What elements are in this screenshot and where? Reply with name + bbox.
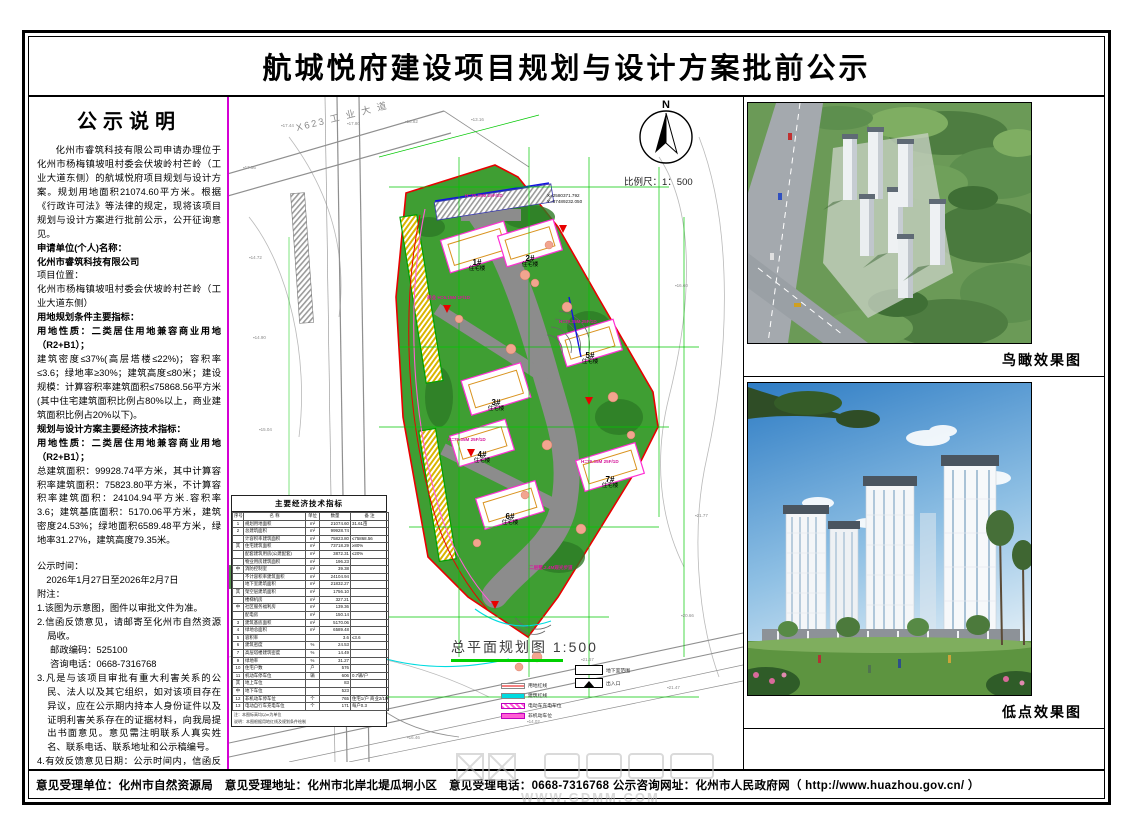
table-cell: 13	[233, 703, 244, 711]
table-cell: 73718.29	[320, 543, 351, 551]
table-row: 12非机动车停车位个765住宅1/户 商业2/100m²	[233, 695, 389, 703]
th-note: 备 注	[351, 513, 389, 521]
building-spec-label: H=79.35M 25F/2D	[465, 193, 503, 199]
notice-paragraph: 附注：	[37, 588, 221, 602]
table-cell: 39.38	[320, 566, 351, 574]
table-cell	[233, 535, 244, 543]
table-cell	[351, 573, 389, 581]
table-cell: 非机动车停车位	[244, 695, 306, 703]
page-title: 航城悦府建设项目规划与设计方案批前公示	[262, 45, 870, 87]
table-cell: 11	[233, 672, 244, 680]
building-label-5: 5#住宅楼	[582, 352, 599, 366]
table-row: 4绿地总面积m²6589.48	[233, 627, 389, 635]
notice-paragraph: 邮政编码：525100	[50, 644, 221, 658]
table-cell	[351, 642, 389, 650]
table-cell: 建筑基底面积	[244, 619, 306, 627]
table-row: 2总建筑面积m²99928.74	[233, 528, 389, 536]
table-row: 配电房m²150.14	[233, 611, 389, 619]
footer-bar: 意见受理单位：化州市自然资源局 意见受理地址：化州市北岸北堤瓜坰小区 意见受理电…	[29, 769, 1104, 798]
table-cell	[351, 528, 389, 536]
table-cell	[233, 551, 244, 559]
table-cell: 楼梯机房	[244, 596, 306, 604]
table-cell	[233, 611, 244, 619]
table-cell: m²	[306, 520, 320, 528]
building-label-4: 4#住宅楼	[474, 451, 491, 465]
th-name: 名 称	[244, 513, 306, 521]
table-cell: 139.36	[320, 604, 351, 612]
aerial-caption-row: 鸟瞰效果图	[744, 344, 1104, 377]
table-cell: 765	[320, 695, 351, 703]
table-cell: 其	[233, 589, 244, 597]
table-cell: m²	[306, 604, 320, 612]
street-figure	[744, 377, 1104, 696]
branch-foliage	[774, 391, 842, 415]
notice-paragraph: 建筑密度≤37%(高层塔楼≤22%)；容积率≤3.6；绿地率≥30%；建筑高度≤…	[37, 353, 221, 423]
table-cell	[233, 573, 244, 581]
basement-extent-swatch	[575, 665, 603, 675]
table-cell: ≤20%	[351, 551, 389, 559]
site-plan: N 比例尺：1：500 X623 工 业 大 道 X=2580371.792 Y…	[229, 97, 743, 769]
building-label-7: 7#住宅楼	[602, 476, 619, 490]
legend-item: 非机动车位	[501, 712, 562, 719]
table-cell	[233, 581, 244, 589]
notice-panel: 公示说明 化州市睿筑科技有限公司申请办理位于化州市杨梅镇坡咀村委会伏坡岭村芒岭（…	[29, 97, 227, 769]
table-cell: 绿地总面积	[244, 627, 306, 635]
notice-paragraph: 用地性质：二类居住用地兼容商业用地（R2+B1）；	[37, 325, 221, 353]
table-cell: 物业用房建筑面积	[244, 558, 306, 566]
table-note: 注：本图标高均以m为单位	[232, 711, 386, 719]
table-cell: 523	[320, 688, 351, 696]
table-cell: 社区服务福利房	[244, 604, 306, 612]
table-note: 说明：本图根据用地红线及规划条件绘制	[232, 718, 386, 726]
table-cell: 6	[233, 642, 244, 650]
street-caption-row: 低点效果图	[744, 696, 1104, 729]
table-row: 其地上车位83	[233, 680, 389, 688]
table-cell: 3.6	[320, 634, 351, 642]
table-row: 其架空层建筑面积m²1756.10	[233, 589, 389, 597]
legend-item: 用地红线	[501, 682, 562, 689]
elevation-mark: ▪20.66	[681, 613, 694, 618]
table-cell: 计容积率建筑面积	[244, 535, 306, 543]
table-cell: 不计容积率建筑面积	[244, 573, 306, 581]
table-cell	[351, 581, 389, 589]
building-spec-label: 二层墅.2.4M观光步道	[529, 565, 573, 571]
plan-legend-colors: 用地红线 建筑红线 电动车充电车位 非机动车位	[501, 682, 562, 722]
table-row: 中消防控制室m²39.38	[233, 566, 389, 574]
street-render-image	[747, 382, 1032, 696]
elevation-mark: ▪14.90	[253, 335, 266, 340]
legend-item: 建筑红线	[501, 692, 562, 699]
elevation-mark: ▪14.72	[249, 255, 262, 260]
table-cell: 150.14	[320, 611, 351, 619]
table-cell: m²	[306, 566, 320, 574]
table-cell: 中	[233, 604, 244, 612]
table-cell: 总建筑面积	[244, 528, 306, 536]
table-cell: 辆	[306, 672, 320, 680]
table-cell: 电动自行车充电车位	[244, 703, 306, 711]
building-spec-label: H=79.35M 25F/1D	[448, 437, 486, 443]
table-cell: 0.7辆/户	[351, 672, 389, 680]
table-cell: %	[306, 649, 320, 657]
table-row: 中社区服务福利房m²139.36	[233, 604, 389, 612]
table-cell	[351, 649, 389, 657]
notice-paragraph: 3.凡是与该项目审批有重大利害关系的公民、法人以及其它组织，如对该项目存在异议，…	[37, 672, 221, 756]
building-spec-label: H=79.35M 25F/1D	[581, 459, 619, 465]
lawn-highlight	[748, 637, 1031, 653]
table-row: 配套建筑用房(公建配套)m²3872.31≤20%	[233, 551, 389, 559]
table-cell	[351, 619, 389, 627]
table-row: 中地下车位523	[233, 688, 389, 696]
table-cell: 99928.74	[320, 528, 351, 536]
red-line-swatch	[501, 683, 525, 689]
notice-paragraph: 化州市睿筑科技有限公司	[37, 256, 221, 270]
table-cell: 21074.60	[320, 520, 351, 528]
cyan-line-swatch	[501, 693, 525, 699]
table-cell: 606	[320, 672, 351, 680]
table-cell	[233, 596, 244, 604]
building-label-2: 2#住宅楼	[522, 255, 539, 269]
table-row: 其住宅建筑面积m²73718.29≥80%	[233, 543, 389, 551]
notice-paragraph: 2.信函反馈意见，请邮寄至化州市自然资源局收。	[37, 616, 221, 644]
table-cell: 12	[233, 695, 244, 703]
table-cell: 2	[233, 528, 244, 536]
table-cell: ≥80%	[351, 543, 389, 551]
table-cell	[351, 665, 389, 673]
table-cell: 9	[233, 657, 244, 665]
aerial-figure	[744, 97, 1104, 344]
elevation-mark: ▪17.80	[347, 121, 360, 126]
legend-item: 出入口	[575, 678, 630, 688]
table-cell: 7	[233, 649, 244, 657]
notice-paragraph: 公示时间：	[37, 560, 221, 574]
table-cell: m²	[306, 528, 320, 536]
table-cell	[351, 566, 389, 574]
building-label-3: 3#住宅楼	[488, 399, 505, 413]
table-cell: 配电房	[244, 611, 306, 619]
elevation-mark: ▪21.77	[695, 513, 708, 518]
table-cell: 14.49	[320, 649, 351, 657]
th-unit: 单位	[306, 513, 320, 521]
table-cell: 配套建筑用房(公建配套)	[244, 551, 306, 559]
table-cell	[351, 589, 389, 597]
plan-overlays: 1#住宅楼 2#住宅楼 3#住宅楼 4#住宅楼 5#住宅楼 6#住宅楼 7#住宅…	[229, 97, 743, 762]
caption-underline	[451, 659, 563, 662]
notice-paragraph: 化州市睿筑科技有限公司申请办理位于化州市杨梅镇坡咀村委会伏坡岭村芒岭（工业大道东…	[37, 144, 221, 242]
table-cell	[306, 688, 320, 696]
building-label-6: 6#住宅楼	[502, 513, 519, 527]
table-cell: 个	[306, 695, 320, 703]
table-cell: 576	[320, 665, 351, 673]
table-cell: 10	[233, 665, 244, 673]
table-cell	[351, 688, 389, 696]
table-cell: 3	[233, 619, 244, 627]
table-cell: m²	[306, 535, 320, 543]
table-cell: 机动车停车位	[244, 672, 306, 680]
content-area: 公示说明 化州市睿筑科技有限公司申请办理位于化州市杨梅镇坡咀村委会伏坡岭村芒岭（…	[29, 97, 1104, 769]
table-cell: 绿地率	[244, 657, 306, 665]
table-header: 序号 名 称 单位 数量 备 注	[233, 513, 389, 521]
table-cell: 171	[320, 703, 351, 711]
table-row: 1规划用地面积m²21074.6031.61亩	[233, 520, 389, 528]
table-cell	[351, 627, 389, 635]
notice-paragraph: 项目位置：	[37, 269, 221, 283]
table-row: 10住宅户数户576	[233, 665, 389, 673]
table-cell: ≤3.6	[351, 634, 389, 642]
table-title: 主要经济技术指标	[232, 496, 386, 512]
table-cell: 建筑密度	[244, 642, 306, 650]
table-cell: m²	[306, 596, 320, 604]
table-cell: 其	[233, 680, 244, 688]
notice-paragraph: 4.有效反馈意见日期：公示时间内，信函反馈意见邮戳日不应超过公示时间最后一天的2…	[37, 755, 221, 769]
table-cell	[351, 604, 389, 612]
table-cell: 83	[320, 680, 351, 688]
table-cell: 75823.80	[320, 535, 351, 543]
table-row: 13电动自行车充电车位个171每户0.3	[233, 703, 389, 711]
notice-paragraph: 用地规划条件主要指标：	[37, 311, 221, 325]
table-cell: 地下室建筑面积	[244, 581, 306, 589]
notice-paragraph: 总建筑面积：99928.74平方米，其中计算容积率建筑面积：75823.80平方…	[37, 465, 221, 549]
elevation-mark: ▪13.16	[471, 117, 484, 122]
table-row: 5容积率3.6≤3.6	[233, 634, 389, 642]
branch-foliage	[836, 410, 880, 428]
table-row: 6建筑密度%24.53	[233, 642, 389, 650]
elevation-mark: ▪16.60	[675, 283, 688, 288]
table-cell	[351, 680, 389, 688]
table-cell: 31.61亩	[351, 520, 389, 528]
table-cell: m²	[306, 581, 320, 589]
plan-legend-symbols: 地下室范围 出入口	[575, 665, 630, 691]
building-label-1: 1#住宅楼	[469, 259, 486, 273]
table-cell: 地上车位	[244, 680, 306, 688]
table-cell: 消防控制室	[244, 566, 306, 574]
magenta-hatch-swatch	[501, 703, 525, 709]
table-cell: %	[306, 642, 320, 650]
table-cell: 住宅建筑面积	[244, 543, 306, 551]
table-cell: 21832.27	[320, 581, 351, 589]
table-cell	[233, 558, 244, 566]
renders-panel: 鸟瞰效果图	[744, 97, 1104, 769]
table-cell: 5170.06	[320, 619, 351, 627]
table-cell: 地下车位	[244, 688, 306, 696]
table-cell	[351, 596, 389, 604]
table-cell	[351, 558, 389, 566]
building-spec-label: H=79.35M 25F/1D	[559, 319, 597, 325]
table-cell: %	[306, 657, 320, 665]
table-cell: 架空层建筑面积	[244, 589, 306, 597]
table-cell	[306, 634, 320, 642]
table-cell: 327.21	[320, 596, 351, 604]
table-cell: 住宅1/户 商业2/100m²	[351, 695, 389, 703]
table-row: 3建筑基底面积m²5170.06	[233, 619, 389, 627]
table-row: 计容积率建筑面积m²75823.80≤75868.56	[233, 535, 389, 543]
table-row: 物业用房建筑面积m²196.23	[233, 558, 389, 566]
notice-heading: 公示说明	[37, 105, 221, 134]
table-cell: m²	[306, 611, 320, 619]
notice-paragraph: 申请单位(个人)名称：	[37, 242, 221, 256]
th-no: 序号	[233, 513, 244, 521]
table-cell: m²	[306, 627, 320, 635]
legend-item: 电动车充电车位	[501, 702, 562, 709]
table-cell: 户	[306, 665, 320, 673]
table-cell: 31.27	[320, 657, 351, 665]
table-cell: 5	[233, 634, 244, 642]
notice-paragraph: 用地性质：二类居住用地兼容商业用地（R2+B1）；	[37, 437, 221, 465]
footer-text: 意见受理单位：化州市自然资源局 意见受理地址：化州市北岸北堤瓜坰小区 意见受理电…	[36, 777, 980, 793]
elevation-mark: ▪16.82	[405, 119, 418, 124]
table-cell: 196.23	[320, 558, 351, 566]
table-cell: ≤75868.56	[351, 535, 389, 543]
table-cell: 规划用地面积	[244, 520, 306, 528]
table-cell: 住宅户数	[244, 665, 306, 673]
table-cell: 中	[233, 688, 244, 696]
legend-item: 地下室范围	[575, 665, 630, 675]
table-cell: 个	[306, 703, 320, 711]
table-row: 9绿地率%31.27	[233, 657, 389, 665]
notice-paragraph: 化州市杨梅镇坡咀村委会伏坡岭村芒岭（工业大道东侧）	[37, 283, 221, 311]
notice-poster: 航城悦府建设项目规划与设计方案批前公示 公示说明 化州市睿筑科技有限公司申请办理…	[22, 30, 1111, 805]
elevation-mark: ▪17.44	[281, 123, 294, 128]
table-row: 地下室建筑面积m²21832.27	[233, 581, 389, 589]
table-row: 不计容积率建筑面积m²24104.94	[233, 573, 389, 581]
table-cell: 24104.94	[320, 573, 351, 581]
aerial-caption: 鸟瞰效果图	[1002, 350, 1082, 370]
notice-paragraph: 1.该图为示意图，图件以审批文件为准。	[37, 602, 221, 616]
table-cell: 其	[233, 543, 244, 551]
elevation-mark: ▪21.47	[667, 685, 680, 690]
table-cell: m²	[306, 558, 320, 566]
poster-inner-frame: 航城悦府建设项目规划与设计方案批前公示 公示说明 化州市睿筑科技有限公司申请办理…	[28, 36, 1105, 799]
plan-caption: 总平面规划图 1:500	[451, 637, 598, 662]
street-caption: 低点效果图	[1002, 702, 1082, 722]
table-cell: 4	[233, 627, 244, 635]
table-row: 7高层塔楼建筑密度%14.49	[233, 649, 389, 657]
title-bar: 航城悦府建设项目规划与设计方案批前公示	[29, 37, 1104, 97]
elevation-mark: ▪15.04	[259, 427, 272, 432]
elevation-mark: ▪16.46	[407, 735, 420, 740]
table-cell: m²	[306, 619, 320, 627]
table-row: 楼梯机房m²327.21	[233, 596, 389, 604]
table-body: 1规划用地面积m²21074.6031.61亩2总建筑面积m²99928.74计…	[233, 520, 389, 710]
table-cell	[351, 657, 389, 665]
table-cell: 1	[233, 520, 244, 528]
notice-paragraph: 咨询电话：0668-7316768	[50, 658, 221, 672]
table-cell: m²	[306, 543, 320, 551]
table-cell: 高层塔楼建筑密度	[244, 649, 306, 657]
table-cell: 1756.10	[320, 589, 351, 597]
table-cell: 6589.48	[320, 627, 351, 635]
aerial-render-image	[747, 102, 1032, 344]
building-spec-label: 商业 H=6.15M 1F/1D	[427, 295, 470, 301]
table-cell: m²	[306, 589, 320, 597]
table-cell: 中	[233, 566, 244, 574]
table-cell: 24.53	[320, 642, 351, 650]
table-cell: 容积率	[244, 634, 306, 642]
magenta-swatch	[501, 713, 525, 719]
table-cell: 3872.31	[320, 551, 351, 559]
table-cell: 每户0.3	[351, 703, 389, 711]
notice-paragraph: 规划与设计方案主要经济技术指标：	[37, 423, 221, 437]
table-row: 11机动车停车位辆6060.7辆/户	[233, 672, 389, 680]
economic-indicator-table: 主要经济技术指标 序号 名 称 单位 数量 备 注	[231, 495, 387, 727]
notice-paragraph: 2026年1月27日至2026年2月7日	[46, 574, 221, 588]
table-cell	[351, 611, 389, 619]
table-cell: m²	[306, 551, 320, 559]
entrance-triangle-icon	[575, 678, 603, 688]
th-qty: 数量	[320, 513, 351, 521]
elevation-mark: ▪17.56	[243, 165, 256, 170]
table-cell: m²	[306, 573, 320, 581]
table-cell	[306, 680, 320, 688]
